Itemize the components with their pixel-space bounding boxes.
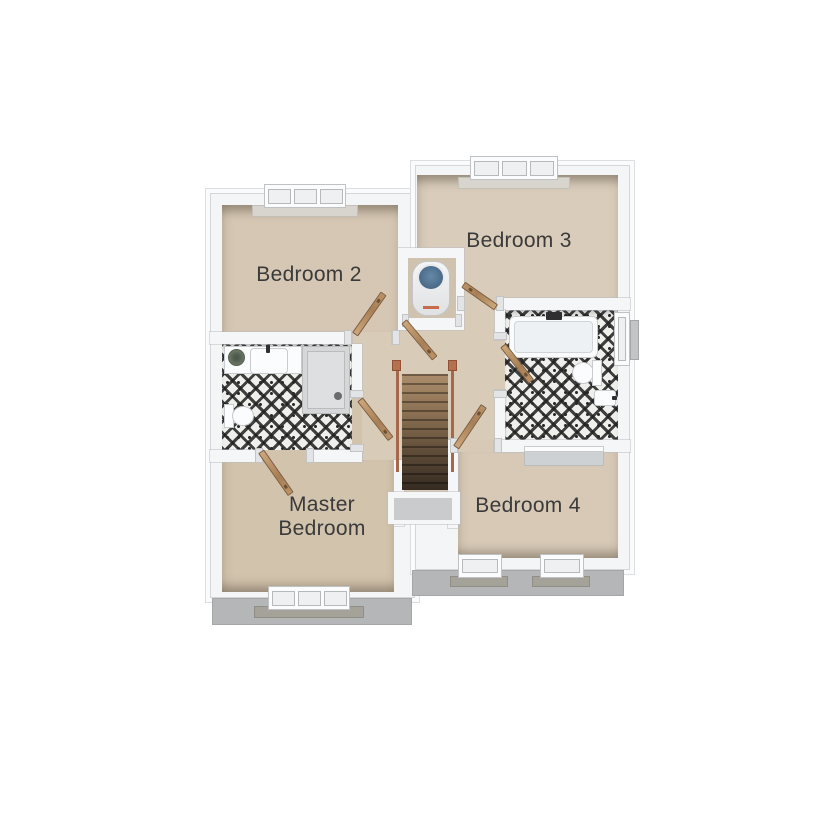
stairwell-bottom-wall-cap <box>394 498 452 520</box>
door-jamb <box>306 448 314 463</box>
window-pane <box>544 559 580 573</box>
basin-tap <box>266 345 270 353</box>
room-label-bedroom3: Bedroom 3 <box>439 229 599 253</box>
room-label-master-line2: Bedroom <box>242 517 402 541</box>
room-label-master-line1: Master <box>242 493 402 517</box>
eaves-right <box>412 570 624 596</box>
stair-rail-left <box>396 368 399 472</box>
bathroom-toilet <box>572 362 594 384</box>
window-pane <box>298 591 321 606</box>
door-jamb <box>455 314 462 327</box>
door-jamb <box>392 330 400 345</box>
door-jamb <box>493 332 507 340</box>
window-pane <box>618 317 626 361</box>
room-label-bedroom2: Bedroom 2 <box>229 263 389 287</box>
shower-drain <box>334 392 342 400</box>
wall <box>497 298 630 310</box>
stair-newel-left <box>392 360 401 371</box>
bath-tap <box>546 312 562 320</box>
stair-newel-right <box>448 360 457 371</box>
door-jamb <box>493 390 507 398</box>
door-jamb <box>494 438 502 453</box>
floor-plan: Bedroom 2 Bedroom 3 Master Bedroom Bedro… <box>0 0 840 840</box>
ensuite-shower-tray <box>307 351 345 409</box>
window-pane <box>272 591 295 606</box>
window-ledge-bathroom <box>630 320 639 360</box>
cylinder-control-panel <box>423 306 439 309</box>
floor-landing <box>448 370 497 440</box>
window-pane <box>320 189 343 204</box>
window-pane <box>294 189 317 204</box>
window-pane <box>502 161 527 176</box>
staircase <box>402 374 448 490</box>
window-pane <box>324 591 347 606</box>
stair-rail-right <box>451 368 454 472</box>
window-pane <box>530 161 554 176</box>
hot-water-cylinder-top <box>417 264 445 291</box>
window-pane <box>474 161 499 176</box>
bathroom-toilet-cistern <box>592 360 602 386</box>
window-pane <box>462 559 498 573</box>
wall <box>210 332 352 344</box>
room-label-master: Master Bedroom <box>242 493 402 541</box>
window-pane <box>268 189 291 204</box>
bedroom4-wardrobe-top <box>524 446 604 452</box>
ensuite-toilet <box>232 406 254 426</box>
bath-interior <box>514 321 593 353</box>
room-label-bedroom4: Bedroom 4 <box>448 494 608 518</box>
door-jamb <box>344 330 352 345</box>
door-jamb <box>350 444 364 452</box>
door-jamb <box>457 296 465 311</box>
vanity-plant <box>228 349 245 366</box>
bathroom-basin-tap <box>612 396 617 400</box>
